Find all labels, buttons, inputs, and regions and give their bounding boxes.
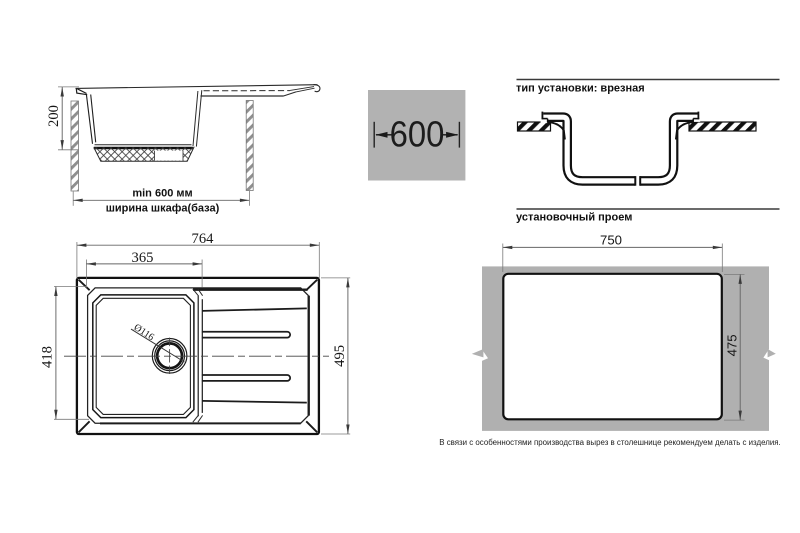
svg-text:495: 495 xyxy=(332,345,348,367)
svg-text:764: 764 xyxy=(192,231,215,247)
svg-text:600: 600 xyxy=(390,115,445,155)
svg-text:750: 750 xyxy=(600,232,622,247)
svg-text:200: 200 xyxy=(46,105,62,127)
svg-text:365: 365 xyxy=(132,250,154,266)
svg-text:установочный проем: установочный проем xyxy=(516,212,632,224)
svg-text:418: 418 xyxy=(40,346,56,368)
svg-text:475: 475 xyxy=(724,334,739,356)
svg-text:ширина шкафа(база): ширина шкафа(база) xyxy=(106,202,220,214)
svg-text:тип установки: врезная: тип установки: врезная xyxy=(516,82,645,94)
svg-text:В связи с особенностями произв: В связи с особенностями производства выр… xyxy=(439,438,780,447)
svg-text:min 600 мм: min 600 мм xyxy=(132,188,192,200)
svg-text:Ø116: Ø116 xyxy=(132,322,156,343)
